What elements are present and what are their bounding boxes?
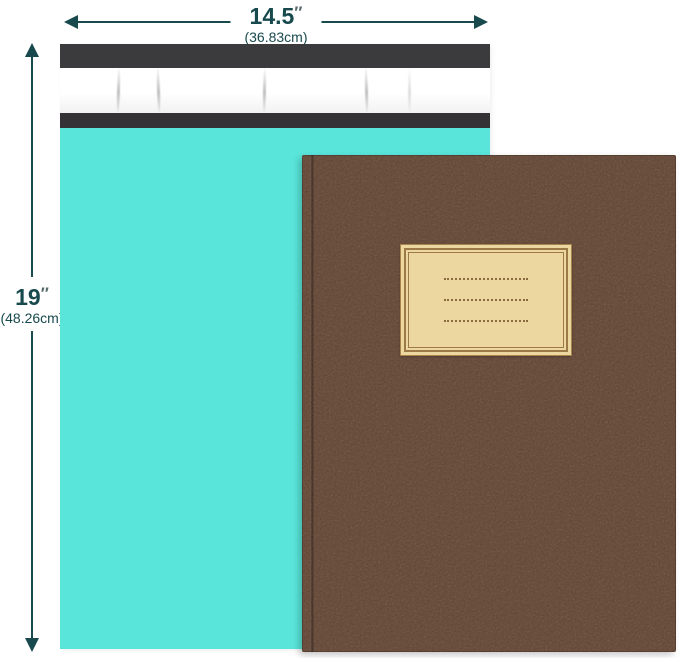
strip-crease (364, 68, 368, 113)
width-dimension-annotation: 14.5″ (36.83cm) (64, 12, 488, 34)
product-dimension-illustration: 14.5″ (36.83cm) 19″ (48.26cm) (0, 0, 679, 658)
arrow-down-icon (25, 638, 39, 652)
arrow-up-icon (25, 43, 39, 57)
write-in-dotted-line (444, 320, 528, 322)
mailer-adhesive-strip (60, 68, 490, 113)
label-inner-frame (408, 252, 564, 348)
arrow-right-icon (474, 15, 488, 29)
write-in-dotted-line (444, 278, 528, 280)
inch-mark: ″ (41, 284, 49, 303)
strip-crease (263, 68, 267, 113)
mailer-flap-edge (60, 113, 490, 128)
height-value: 19″ (0, 281, 63, 310)
height-metric-value: (48.26cm) (0, 310, 63, 327)
mailer-flap (60, 44, 490, 68)
inch-mark: ″ (294, 3, 302, 22)
write-in-dotted-line (444, 299, 528, 301)
paper-texture (302, 155, 676, 652)
width-dimension-label: 14.5″ (36.83cm) (230, 0, 321, 46)
arrow-left-icon (64, 15, 78, 29)
strip-crease (156, 68, 161, 113)
label-outer-frame (404, 248, 568, 352)
height-dimension-line (31, 51, 33, 644)
notebook-edge (302, 155, 676, 652)
strip-crease (408, 68, 411, 113)
height-dimension-annotation: 19″ (48.26cm) (23, 43, 41, 652)
height-dimension-label: 19″ (48.26cm) (0, 277, 66, 331)
width-value: 14.5″ (244, 0, 307, 29)
kraft-notebook (302, 155, 676, 652)
strip-crease (116, 68, 120, 113)
notebook-spine-crease (310, 155, 314, 652)
notebook-title-label (400, 244, 572, 356)
